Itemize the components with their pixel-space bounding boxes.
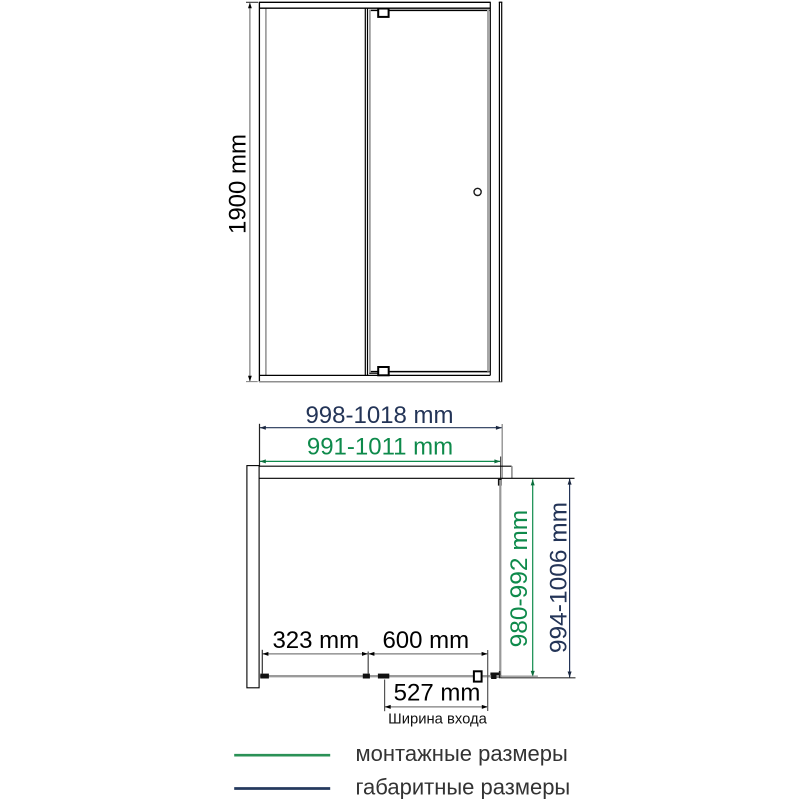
svg-text:323 mm: 323 mm: [272, 627, 359, 654]
svg-text:980-992 mm: 980-992 mm: [506, 510, 533, 648]
svg-text:1900 mm: 1900 mm: [224, 134, 251, 234]
svg-text:монтажные размеры: монтажные размеры: [356, 741, 568, 766]
svg-text:Ширина входа: Ширина входа: [388, 712, 487, 728]
svg-text:998-1018 mm: 998-1018 mm: [305, 402, 453, 429]
svg-text:994-1006 mm: 994-1006 mm: [546, 502, 573, 653]
svg-text:габаритные размеры: габаритные размеры: [356, 775, 571, 800]
svg-text:527 mm: 527 mm: [394, 680, 481, 707]
svg-text:600 mm: 600 mm: [382, 627, 469, 654]
svg-text:991-1011 mm: 991-1011 mm: [307, 434, 453, 461]
